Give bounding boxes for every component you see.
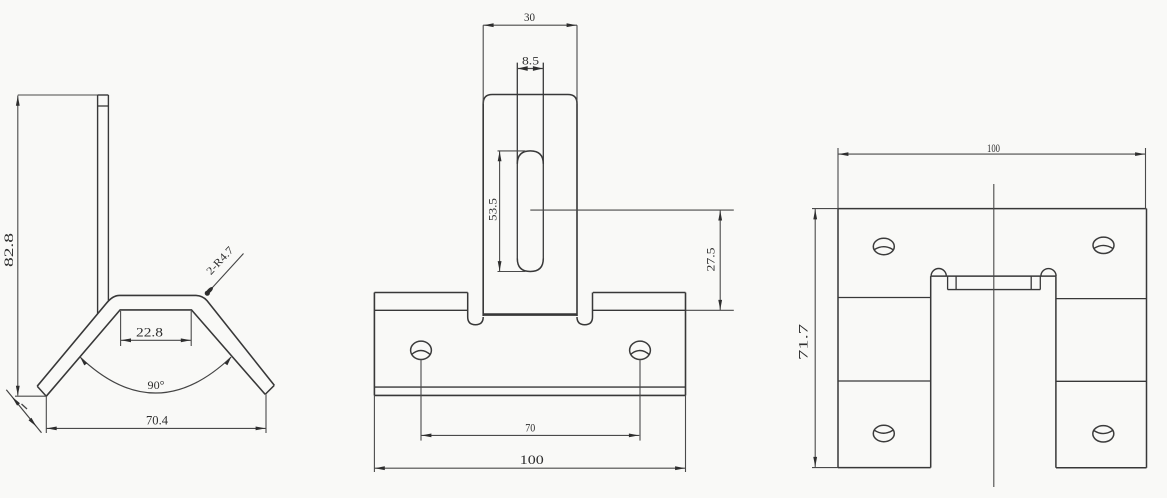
- svg-text:27.5: 27.5: [704, 248, 718, 272]
- svg-text:30: 30: [524, 10, 535, 24]
- svg-text:100: 100: [520, 453, 544, 467]
- svg-text:70: 70: [525, 421, 535, 435]
- svg-text:22.8: 22.8: [136, 325, 163, 339]
- svg-text:8.5: 8.5: [522, 54, 539, 68]
- svg-text:53.5: 53.5: [486, 198, 500, 221]
- svg-text:100: 100: [987, 141, 1000, 155]
- svg-text:82.8: 82.8: [2, 233, 16, 267]
- svg-text:71.7: 71.7: [797, 324, 811, 360]
- svg-text:70.4: 70.4: [146, 414, 169, 428]
- svg-text:90°: 90°: [148, 378, 165, 392]
